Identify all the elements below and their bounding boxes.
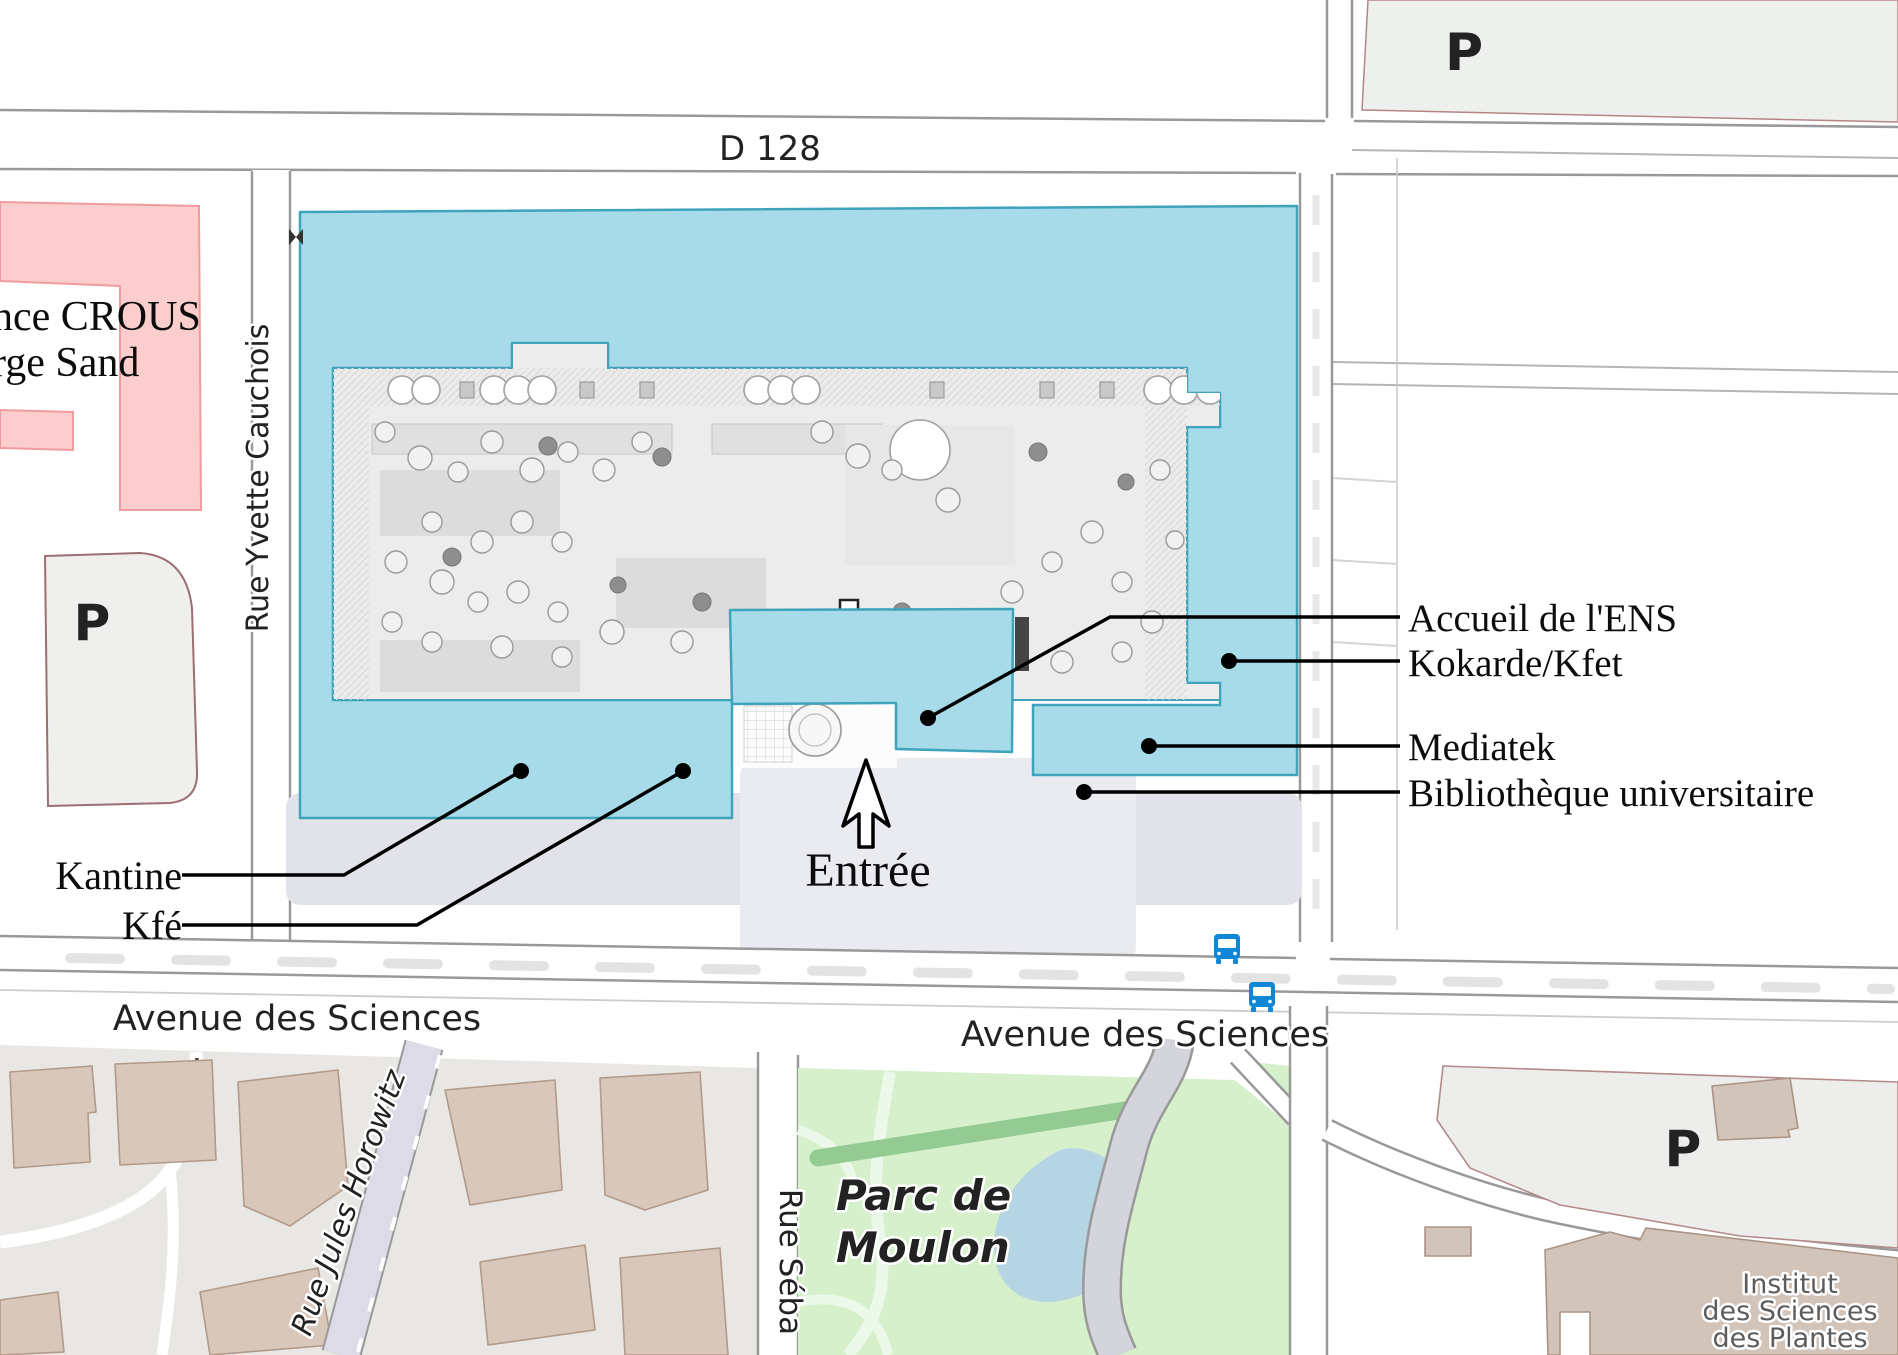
parking-p-southeast: P — [1665, 1120, 1702, 1178]
entrance-courtyard — [734, 700, 897, 768]
street-label-avenue-des-sciences-east: Avenue des Sciences — [961, 1015, 1329, 1055]
bus-stop-icon-2 — [1249, 982, 1275, 1012]
callout-mediatek: Mediatek — [1408, 726, 1556, 769]
parking-lot-top-right — [1362, 0, 1898, 122]
street-label-d128: D 128 — [719, 129, 821, 169]
road-north-vertical — [1327, 0, 1352, 118]
street-label-avenue-des-sciences-west: Avenue des Sciences — [113, 999, 481, 1039]
callout-kfe: Kfé — [122, 903, 182, 948]
parking-p-top-right: P — [1445, 23, 1483, 83]
callout-kokarde: Kokarde/Kfet — [1408, 642, 1623, 685]
street-label-rue-sebastien: Rue Séba — [772, 1189, 808, 1335]
parking-lot-west — [45, 553, 197, 806]
street-label-rue-yvette-cauchois: Rue Yvette Cauchois — [241, 324, 276, 633]
callout-kantine: Kantine — [55, 853, 182, 898]
callout-bibliotheque: Bibliothèque universitaire — [1408, 772, 1814, 815]
crous-label-line1: nce CROUS — [0, 294, 201, 340]
institut-label-line3: des Plantes — [1712, 1323, 1867, 1354]
campus-map[interactable]: D 128 Rue Yvette Cauchois Avenue des Sci… — [0, 0, 1898, 1355]
road-east-vertical — [1300, 172, 1332, 944]
callout-accueil: Accueil de l'ENS — [1408, 597, 1677, 640]
parking-p-west: P — [74, 594, 111, 652]
park-label-line1: Parc de — [836, 1171, 1011, 1220]
road-d128 — [0, 110, 1898, 176]
park-label-line2: Moulon — [836, 1223, 1010, 1272]
callout-entree: Entrée — [805, 844, 930, 897]
crous-label-line2: rge Sand — [0, 340, 139, 386]
